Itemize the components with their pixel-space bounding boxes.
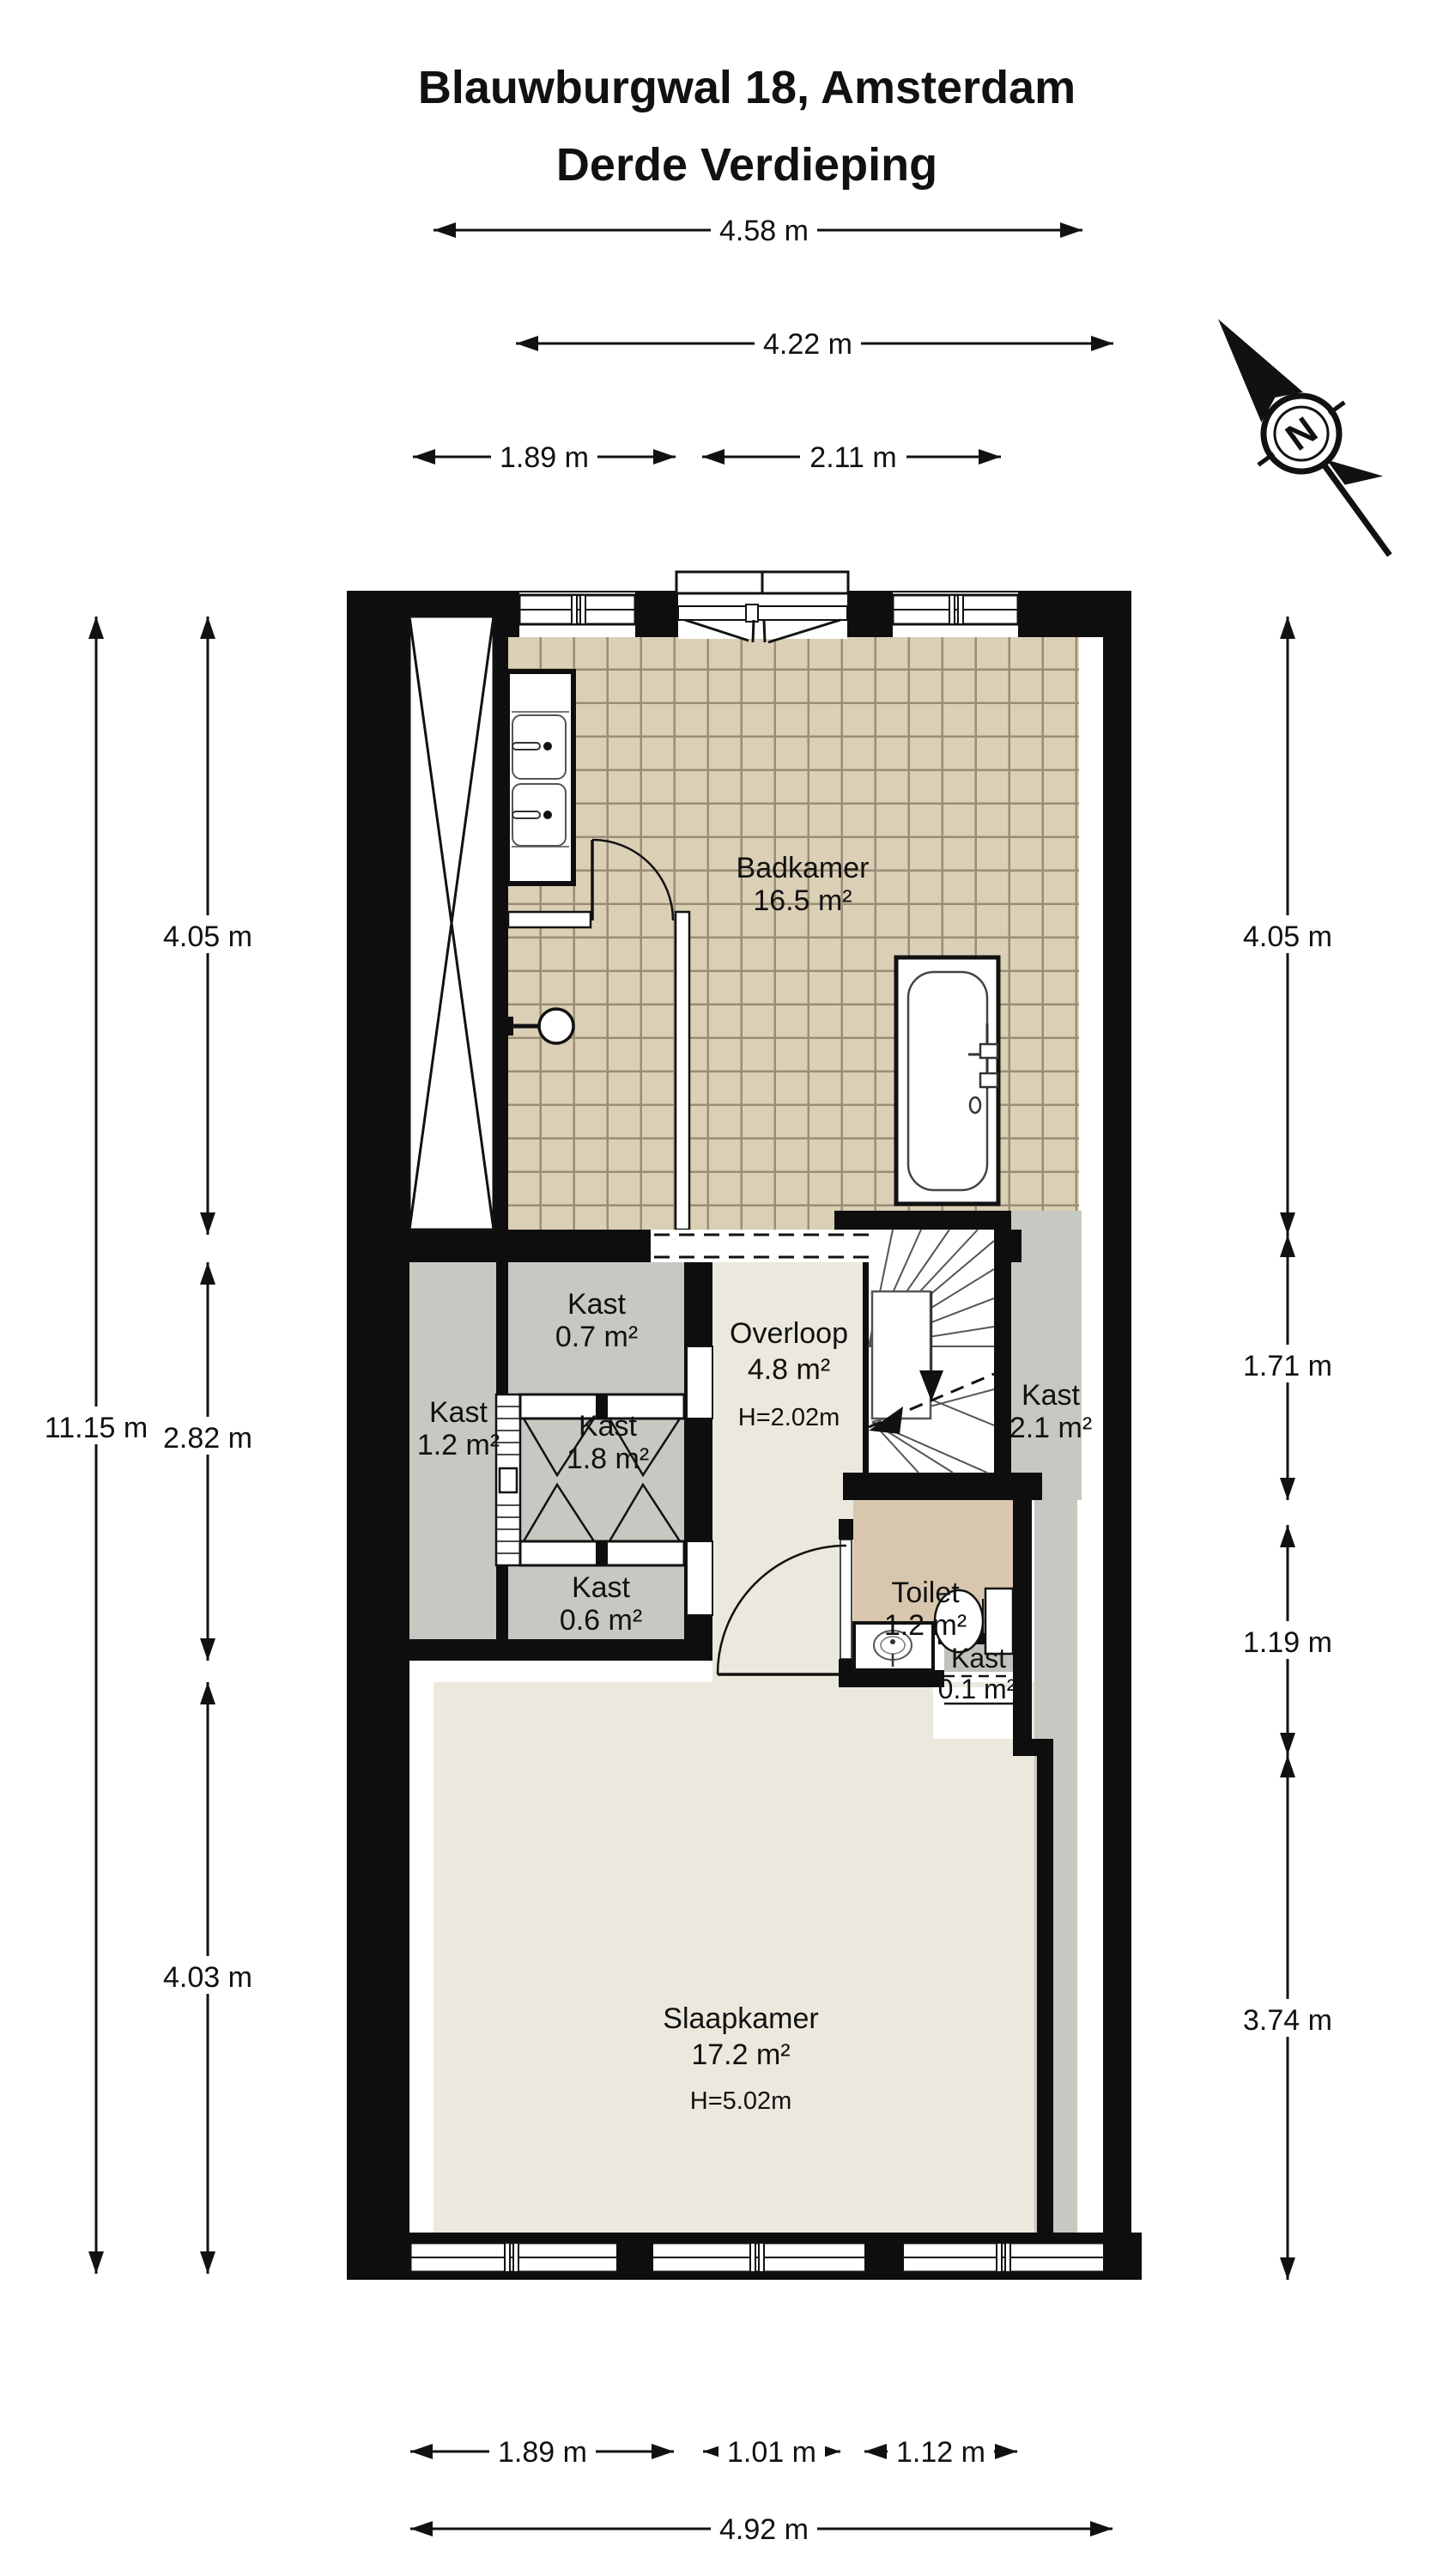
dim-label-top-211: 2.11 m bbox=[809, 441, 896, 474]
accordion-door bbox=[496, 1394, 520, 1565]
dim-label-bottom-189: 1.89 m bbox=[498, 2436, 587, 2469]
dim-label-right-119: 1.19 m bbox=[1243, 1626, 1332, 1659]
svg-text:0.1 m²: 0.1 m² bbox=[938, 1674, 1016, 1704]
dim-label-top-189: 1.89 m bbox=[500, 441, 589, 474]
svg-text:H=5.02m: H=5.02m bbox=[690, 2087, 791, 2115]
bathtub bbox=[896, 957, 998, 1204]
room-label-badkamer: Badkamer 16.5 m² bbox=[737, 852, 870, 917]
void-shaft bbox=[409, 617, 494, 1230]
title-block: Blauwburgwal 18, Amsterdam Derde Verdiep… bbox=[418, 62, 1076, 191]
svg-text:17.2 m²: 17.2 m² bbox=[691, 2038, 790, 2071]
staircase bbox=[869, 1230, 994, 1473]
room-label-kast18: Kast 1.8 m² bbox=[567, 1410, 649, 1475]
page-title-line2: Derde Verdieping bbox=[556, 139, 937, 191]
sink-vanity bbox=[505, 669, 576, 886]
room-label-kast21: Kast 2.1 m² bbox=[1009, 1379, 1092, 1444]
svg-text:Slaapkamer: Slaapkamer bbox=[663, 2002, 818, 2035]
corner-pier bbox=[1103, 2233, 1142, 2280]
dim-label-right-171: 1.71 m bbox=[1243, 1350, 1332, 1382]
svg-text:Kast: Kast bbox=[1022, 1379, 1081, 1412]
svg-text:2.1 m²: 2.1 m² bbox=[1009, 1412, 1092, 1444]
svg-text:1.2 m²: 1.2 m² bbox=[417, 1429, 500, 1461]
room-label-kast06: Kast 0.6 m² bbox=[560, 1571, 642, 1637]
dim-label-right-405: 4.05 m bbox=[1243, 920, 1332, 953]
svg-text:1.8 m²: 1.8 m² bbox=[567, 1443, 649, 1475]
window-pier bbox=[616, 2243, 653, 2272]
svg-text:Kast: Kast bbox=[572, 1571, 631, 1604]
svg-text:0.7 m²: 0.7 m² bbox=[555, 1321, 638, 1353]
svg-text:Kast: Kast bbox=[579, 1410, 638, 1443]
svg-text:16.5 m²: 16.5 m² bbox=[753, 884, 852, 917]
room-label-kast12: Kast 1.2 m² bbox=[417, 1396, 500, 1461]
top-openings bbox=[519, 572, 1018, 642]
floor-plan-canvas: Blauwburgwal 18, Amsterdam Derde Verdiep… bbox=[0, 0, 1449, 2576]
floorplan-page: { "title": { "line1": "Blauwburgwal 18, … bbox=[0, 0, 1449, 2576]
room-label-kast07: Kast 0.7 m² bbox=[555, 1288, 638, 1353]
compass-north-icon: N bbox=[1175, 288, 1433, 586]
dim-label-left-1115: 11.15 m bbox=[45, 1412, 148, 1444]
svg-text:Toilet: Toilet bbox=[891, 1577, 960, 1609]
svg-text:0.6 m²: 0.6 m² bbox=[560, 1604, 642, 1637]
dim-label-top-422: 4.22 m bbox=[763, 328, 852, 361]
faucet-icon bbox=[512, 811, 540, 818]
window-pier bbox=[864, 2243, 904, 2272]
faucet-icon bbox=[512, 743, 540, 750]
svg-text:Overloop: Overloop bbox=[730, 1317, 848, 1350]
dim-label-left-405: 4.05 m bbox=[163, 920, 252, 953]
page-title-line1: Blauwburgwal 18, Amsterdam bbox=[418, 62, 1076, 113]
kast21-floor bbox=[1011, 1211, 1082, 1500]
svg-text:Kast: Kast bbox=[429, 1396, 488, 1429]
dim-label-right-374: 3.74 m bbox=[1243, 2004, 1332, 2037]
dim-label-bottom-101: 1.01 m bbox=[727, 2436, 816, 2469]
dim-label-left-282: 2.82 m bbox=[163, 1422, 252, 1455]
dim-label-bottom-492: 4.92 m bbox=[719, 2513, 809, 2546]
svg-text:H=2.02m: H=2.02m bbox=[738, 1404, 840, 1431]
slaapkamer-floor bbox=[433, 1682, 1047, 2233]
dim-label-bottom-112: 1.12 m bbox=[896, 2436, 985, 2469]
svg-text:4.8 m²: 4.8 m² bbox=[748, 1353, 830, 1386]
french-door-frame bbox=[678, 606, 847, 620]
dim-label-top-458: 4.58 m bbox=[719, 215, 809, 247]
svg-text:Kast: Kast bbox=[567, 1288, 627, 1321]
room-label-toilet: Toilet 1.2 m² bbox=[884, 1577, 967, 1642]
balcony-rail-right bbox=[762, 572, 848, 593]
svg-text:Badkamer: Badkamer bbox=[737, 852, 870, 884]
svg-text:Kast: Kast bbox=[951, 1643, 1006, 1674]
balcony-rail-left bbox=[676, 572, 762, 593]
dim-label-left-403: 4.03 m bbox=[163, 1961, 252, 1994]
svg-text:1.2 m²: 1.2 m² bbox=[884, 1609, 967, 1642]
